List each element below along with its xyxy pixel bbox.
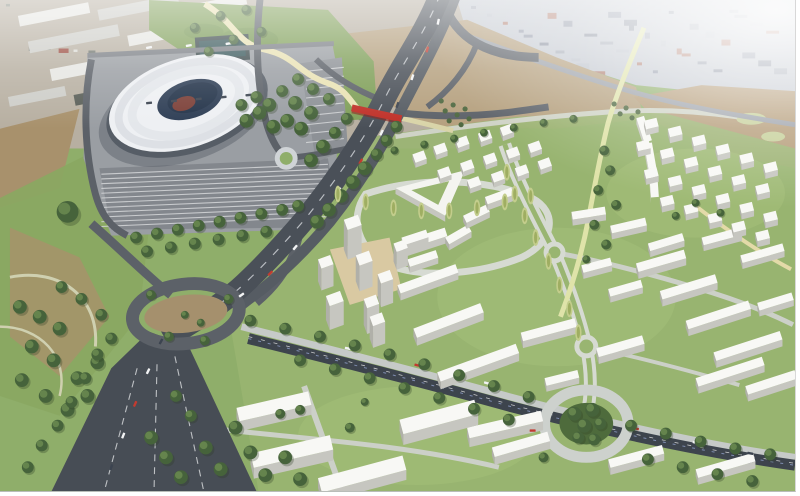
tree-highlight bbox=[454, 370, 461, 377]
tower-building bbox=[318, 255, 334, 290]
tree-highlight bbox=[372, 149, 379, 156]
tree-highlight bbox=[747, 476, 754, 483]
poplar-tree bbox=[363, 194, 369, 211]
tree-highlight bbox=[589, 434, 596, 441]
cube-building bbox=[763, 211, 778, 229]
poplar-tree bbox=[532, 229, 538, 246]
tree-highlight bbox=[53, 421, 60, 428]
tree-highlight bbox=[391, 147, 395, 151]
tree-highlight bbox=[37, 440, 44, 447]
tree-highlight bbox=[279, 451, 287, 459]
poplar-core bbox=[420, 205, 423, 217]
tree-highlight bbox=[765, 449, 772, 456]
tree-highlight bbox=[399, 383, 406, 390]
tree-highlight bbox=[80, 373, 87, 380]
masterplan-svg bbox=[0, 0, 796, 492]
tree-highlight bbox=[66, 397, 73, 404]
tree-highlight bbox=[230, 422, 238, 430]
poplar-core bbox=[336, 188, 339, 200]
tree-highlight bbox=[23, 462, 30, 469]
tree-highlight bbox=[384, 349, 391, 356]
poplar-core bbox=[547, 255, 550, 267]
tree-highlight bbox=[215, 217, 222, 224]
tree-highlight bbox=[26, 341, 34, 349]
poplar-core bbox=[558, 279, 561, 291]
stadium-roundabout bbox=[277, 149, 295, 167]
tree-highlight bbox=[330, 364, 337, 371]
tower-building bbox=[326, 291, 344, 330]
tree-highlight bbox=[57, 282, 64, 289]
tree-highlight bbox=[165, 332, 170, 337]
tree-highlight bbox=[578, 420, 586, 428]
tree-highlight bbox=[323, 204, 331, 212]
tree-highlight bbox=[573, 432, 580, 439]
tower-building-side bbox=[321, 264, 333, 290]
tree-highlight bbox=[92, 349, 99, 356]
tree-highlight bbox=[583, 256, 587, 260]
vehicle bbox=[530, 429, 536, 431]
tree-highlight bbox=[224, 295, 229, 300]
tree-highlight bbox=[595, 419, 602, 426]
tree-highlight bbox=[602, 240, 607, 245]
tree-highlight bbox=[147, 291, 152, 296]
tree-highlight bbox=[524, 392, 531, 399]
tree-highlight bbox=[661, 429, 668, 436]
tree-highlight bbox=[76, 294, 83, 301]
poplar-core bbox=[577, 327, 580, 339]
tree-highlight bbox=[434, 393, 441, 400]
tree-highlight bbox=[152, 229, 159, 236]
tower-building-side bbox=[373, 322, 385, 348]
poplar-tree bbox=[566, 300, 572, 317]
tree-highlight bbox=[626, 421, 633, 428]
tree-highlight bbox=[200, 442, 208, 450]
tree-highlight bbox=[347, 176, 355, 184]
tree-highlight bbox=[72, 372, 80, 380]
tree-highlight bbox=[539, 453, 544, 458]
tree-highlight bbox=[160, 451, 168, 459]
cube-building bbox=[755, 230, 770, 248]
aerial-masterplan-render bbox=[0, 0, 800, 496]
tree-highlight bbox=[590, 221, 595, 226]
poplar-core bbox=[523, 210, 526, 222]
tree-highlight bbox=[82, 390, 90, 398]
tree-highlight bbox=[194, 221, 201, 228]
tree-highlight bbox=[504, 415, 511, 422]
tree-highlight bbox=[173, 225, 180, 232]
tree-highlight bbox=[245, 316, 252, 323]
tree-highlight bbox=[166, 242, 173, 249]
tree-highlight bbox=[359, 162, 367, 170]
tree-highlight bbox=[40, 390, 48, 398]
tree-highlight bbox=[237, 231, 244, 238]
tree-highlight bbox=[48, 354, 56, 362]
tree-highlight bbox=[315, 332, 322, 339]
tree-highlight bbox=[96, 310, 103, 317]
cube-building bbox=[731, 221, 746, 239]
tree-highlight bbox=[350, 340, 357, 347]
tree-highlight bbox=[131, 233, 138, 240]
poplar-core bbox=[364, 196, 367, 208]
tree-highlight bbox=[197, 319, 201, 323]
tree-highlight bbox=[712, 469, 719, 476]
city-haze bbox=[427, 0, 795, 208]
tree-highlight bbox=[311, 216, 319, 224]
tree-highlight bbox=[346, 423, 351, 428]
tree-highlight bbox=[293, 201, 300, 208]
tree-highlight bbox=[382, 136, 389, 143]
tree-highlight bbox=[259, 469, 267, 477]
tree-highlight bbox=[678, 462, 685, 469]
tree-highlight bbox=[215, 463, 223, 471]
tree-highlight bbox=[489, 381, 496, 388]
tree-highlight bbox=[261, 227, 268, 234]
poplar-core bbox=[568, 303, 571, 315]
tower-building-side bbox=[360, 261, 373, 291]
tree-highlight bbox=[54, 323, 62, 331]
tree-highlight bbox=[181, 311, 185, 315]
tree-highlight bbox=[361, 399, 365, 403]
tower-building bbox=[370, 312, 386, 347]
poplar-tree bbox=[390, 199, 396, 216]
tree-highlight bbox=[419, 359, 426, 366]
poplar-tree bbox=[545, 253, 551, 270]
tree-highlight bbox=[280, 324, 287, 331]
tree-highlight bbox=[171, 391, 178, 398]
tree-highlight bbox=[142, 246, 149, 253]
tree-highlight bbox=[421, 141, 425, 145]
tower-building-side bbox=[381, 279, 393, 307]
tree-highlight bbox=[469, 404, 476, 411]
tree-highlight bbox=[276, 410, 281, 415]
tree-highlight bbox=[190, 238, 197, 245]
tree-highlight bbox=[58, 203, 70, 215]
tree-highlight bbox=[186, 411, 193, 418]
tree-highlight bbox=[200, 336, 205, 341]
tree-highlight bbox=[730, 443, 737, 450]
tree-highlight bbox=[295, 355, 302, 362]
tree-highlight bbox=[568, 408, 576, 416]
tree-highlight bbox=[672, 212, 676, 216]
tower-building bbox=[394, 239, 408, 269]
tree-highlight bbox=[586, 404, 594, 412]
tree-highlight bbox=[14, 301, 22, 309]
tree-highlight bbox=[235, 213, 242, 220]
tree-highlight bbox=[175, 471, 183, 479]
tree-highlight bbox=[317, 141, 325, 149]
poplar-tree bbox=[556, 277, 562, 294]
tree-highlight bbox=[34, 311, 42, 319]
tree-highlight bbox=[305, 154, 313, 162]
tower-building bbox=[356, 251, 373, 292]
tree-highlight bbox=[214, 235, 221, 242]
poplar-core bbox=[392, 202, 395, 214]
poplar-tree bbox=[418, 202, 424, 219]
tree-highlight bbox=[245, 447, 253, 455]
tower-building bbox=[344, 215, 362, 260]
tree-highlight bbox=[643, 454, 650, 461]
tree-highlight bbox=[145, 432, 153, 440]
poplar-core bbox=[534, 232, 537, 244]
tower-building bbox=[378, 270, 394, 307]
tree-highlight bbox=[294, 473, 302, 481]
tree-highlight bbox=[365, 373, 372, 380]
poplar-tree bbox=[575, 324, 581, 341]
poplar-tree bbox=[335, 186, 341, 203]
tree-highlight bbox=[16, 374, 24, 382]
tower-building-side bbox=[330, 301, 344, 330]
tree-highlight bbox=[717, 209, 721, 213]
tree-highlight bbox=[106, 334, 113, 341]
tree-highlight bbox=[256, 209, 263, 216]
poplar-tree bbox=[522, 207, 528, 224]
tree-highlight bbox=[296, 406, 301, 411]
tree-highlight bbox=[696, 436, 703, 443]
tree-highlight bbox=[277, 205, 284, 212]
